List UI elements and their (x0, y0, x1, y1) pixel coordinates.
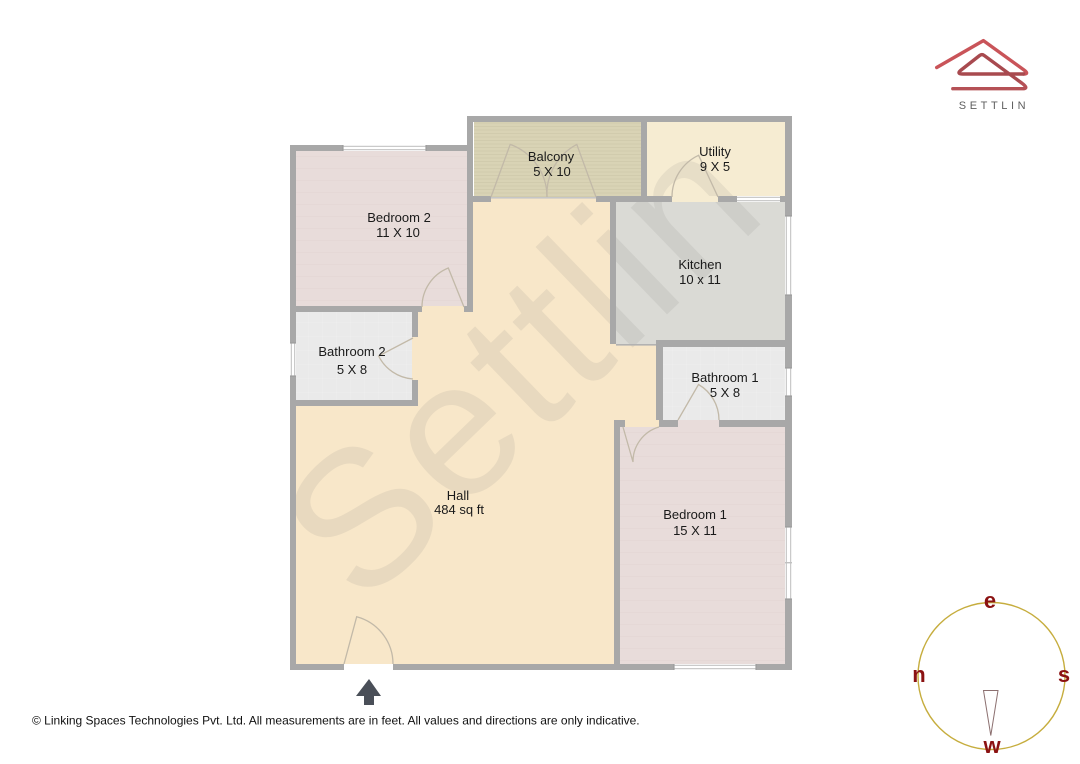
svg-text:5 X 10: 5 X 10 (533, 164, 571, 179)
svg-text:Bedroom 2: Bedroom 2 (367, 210, 431, 225)
svg-text:9 X 5: 9 X 5 (700, 159, 730, 174)
svg-text:10 x 11: 10 x 11 (679, 272, 721, 287)
svg-text:e: e (984, 588, 996, 613)
svg-text:Bathroom 2: Bathroom 2 (318, 344, 385, 359)
svg-text:5 X 8: 5 X 8 (710, 385, 740, 400)
svg-text:w: w (982, 733, 1001, 758)
svg-text:Kitchen: Kitchen (678, 257, 721, 272)
svg-text:Bedroom 1: Bedroom 1 (663, 507, 727, 522)
svg-text:5 X 8: 5 X 8 (337, 362, 367, 377)
svg-text:© Linking Spaces Technologies: © Linking Spaces Technologies Pvt. Ltd. … (32, 714, 640, 728)
svg-text:Utility: Utility (699, 144, 731, 159)
svg-text:11 X 10: 11 X 10 (376, 225, 420, 240)
svg-text:s: s (1058, 662, 1070, 687)
svg-text:n: n (912, 662, 925, 687)
svg-text:SETTLIN: SETTLIN (959, 100, 1029, 112)
svg-text:Bathroom 1: Bathroom 1 (691, 370, 758, 385)
svg-text:Hall: Hall (447, 488, 470, 503)
svg-text:484 sq ft: 484 sq ft (434, 502, 484, 517)
svg-text:Balcony: Balcony (528, 149, 575, 164)
svg-text:15 X 11: 15 X 11 (673, 523, 717, 538)
